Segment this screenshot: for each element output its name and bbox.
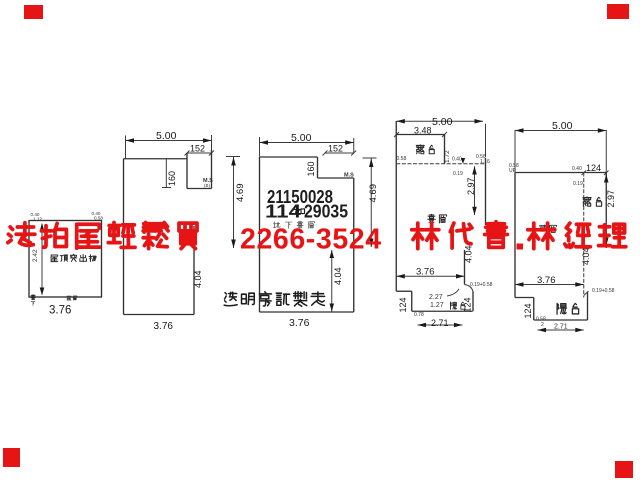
svg-text:3.76: 3.76	[289, 317, 310, 329]
svg-text:M.S: M.S	[344, 173, 354, 179]
svg-text:152: 152	[190, 144, 205, 154]
svg-text:1.16: 1.16	[480, 159, 490, 165]
svg-text:4.69: 4.69	[368, 184, 379, 203]
svg-text:5.00: 5.00	[156, 130, 177, 142]
svg-text:0.19: 0.19	[453, 171, 463, 177]
svg-text:0.78: 0.78	[414, 312, 424, 318]
svg-text:2: 2	[541, 322, 544, 328]
svg-text:124: 124	[398, 297, 408, 312]
svg-text:0.19+0.58: 0.19+0.58	[470, 282, 493, 288]
svg-text:4.69: 4.69	[235, 184, 246, 203]
svg-text:0.19+0.58: 0.19+0.58	[592, 288, 615, 294]
svg-text:4.04: 4.04	[193, 270, 203, 288]
svg-text:124: 124	[463, 297, 473, 312]
svg-text:152: 152	[328, 144, 343, 154]
svg-text:2.97: 2.97	[466, 177, 476, 195]
svg-text:160: 160	[167, 171, 177, 186]
svg-text:2.97: 2.97	[606, 190, 616, 208]
svg-text:4.04: 4.04	[464, 245, 474, 263]
svg-text:124: 124	[586, 163, 601, 173]
svg-text:2.71: 2.71	[554, 324, 568, 331]
svg-text:3.76: 3.76	[416, 267, 435, 278]
svg-text:3.76: 3.76	[537, 275, 556, 286]
svg-text:1.72: 1.72	[444, 150, 451, 163]
svg-text:2.71: 2.71	[431, 318, 449, 328]
svg-text:2.27: 2.27	[429, 294, 443, 301]
svg-text:2266-3524: 2266-3524	[240, 224, 382, 256]
svg-text:5.00: 5.00	[432, 116, 453, 128]
svg-text:3.76: 3.76	[49, 305, 71, 317]
svg-text:5.00: 5.00	[291, 132, 312, 144]
svg-text:5.00: 5.00	[552, 120, 573, 132]
svg-text:1.12: 1.12	[33, 216, 42, 221]
svg-text:29035: 29035	[304, 202, 348, 222]
svg-text:4.04: 4.04	[581, 247, 591, 265]
svg-text:0.58: 0.58	[94, 215, 103, 220]
svg-text:1.27: 1.27	[430, 302, 444, 309]
svg-text:0.58: 0.58	[397, 156, 407, 162]
svg-text:0.19: 0.19	[573, 181, 583, 187]
svg-text:0.40: 0.40	[452, 157, 462, 163]
svg-text:(B): (B)	[204, 183, 211, 188]
svg-text:0.40: 0.40	[572, 166, 582, 172]
svg-text:4.04: 4.04	[333, 267, 343, 285]
svg-text:160: 160	[306, 161, 316, 176]
svg-text:2.42: 2.42	[32, 249, 39, 262]
svg-text:124: 124	[523, 303, 533, 318]
svg-text:3.76: 3.76	[154, 321, 174, 332]
